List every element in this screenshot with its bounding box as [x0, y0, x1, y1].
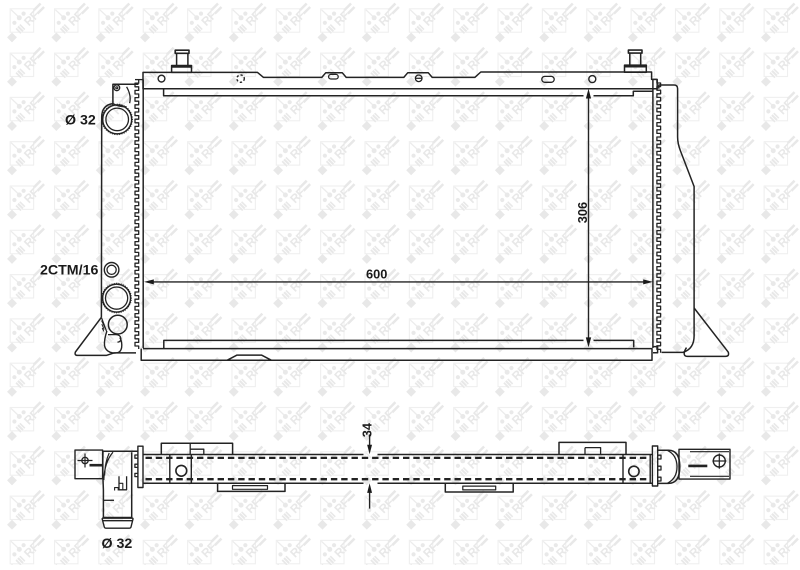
svg-text:Ø 32: Ø 32: [102, 536, 133, 552]
svg-text:34: 34: [360, 422, 375, 437]
svg-text:600: 600: [366, 266, 387, 281]
svg-text:2CTM/16: 2CTM/16: [40, 263, 98, 279]
svg-text:306: 306: [575, 202, 590, 223]
svg-text:Ø 32: Ø 32: [65, 112, 96, 128]
